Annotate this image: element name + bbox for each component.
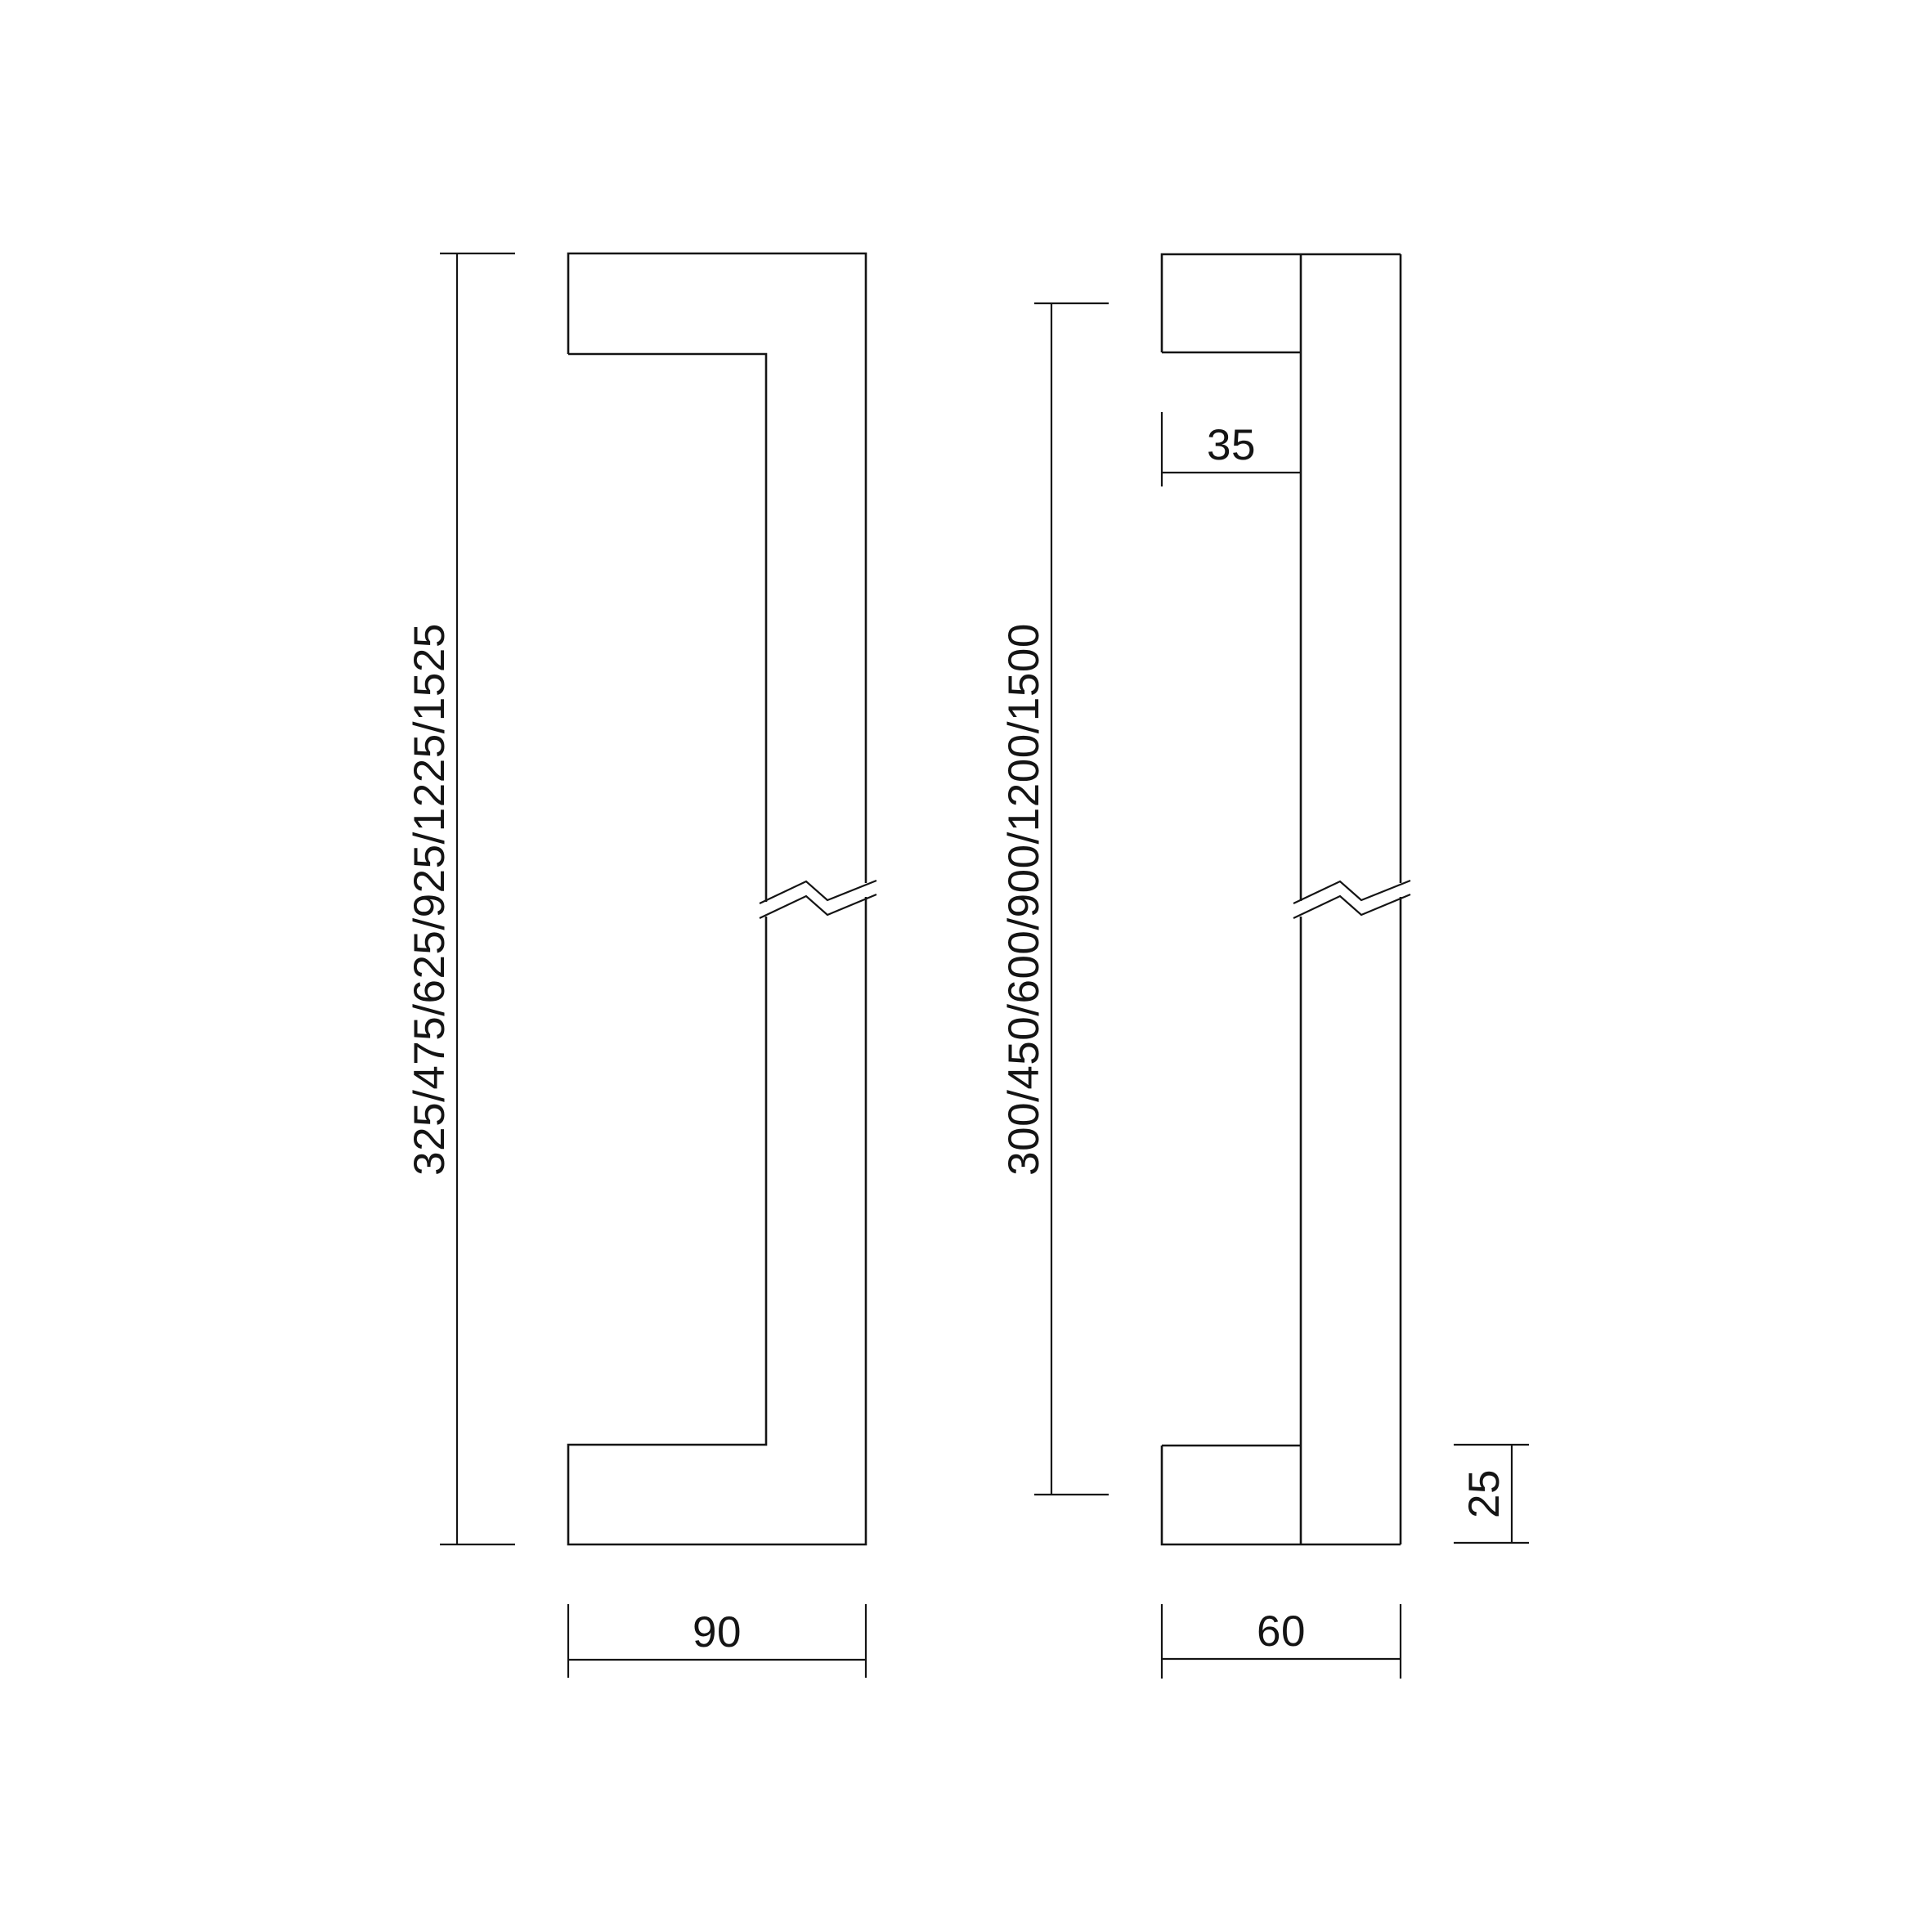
dimension-centre-distance: 300/450/600/900/1200/1500 (1000, 303, 1109, 1495)
break-line-lower (760, 894, 876, 918)
pull-handle-dimension-drawing: 325/475/625/925/1225/1525 90 (0, 0, 1932, 1932)
dimension-foot-height: 25 (1454, 1445, 1529, 1543)
side-view-profile-outline (568, 253, 866, 1544)
dimension-overall-length: 325/475/625/925/1225/1525 (406, 253, 515, 1544)
side-view: 325/475/625/925/1225/1525 90 (406, 253, 876, 1678)
break-symbol (760, 881, 876, 918)
foot-height-label: 25 (1460, 1469, 1508, 1518)
dimension-width: 60 (1162, 1604, 1401, 1679)
dimension-standoff: 35 (1162, 412, 1301, 486)
depth-label: 90 (693, 1608, 742, 1656)
centre-distance-label: 300/450/600/900/1200/1500 (1000, 623, 1048, 1176)
technical-drawing-page: 325/475/625/925/1225/1525 90 (0, 0, 1932, 1932)
break-line-upper (1293, 881, 1410, 903)
break-line-lower (1293, 894, 1410, 918)
front-view: 300/450/600/900/1200/1500 35 25 60 (1000, 254, 1529, 1679)
break-symbol (1293, 881, 1410, 918)
dimension-depth: 90 (568, 1604, 866, 1678)
overall-length-label: 325/475/625/925/1225/1525 (406, 623, 454, 1176)
standoff-label: 35 (1207, 421, 1256, 469)
width-label: 60 (1257, 1607, 1306, 1656)
break-line-upper (760, 881, 876, 903)
